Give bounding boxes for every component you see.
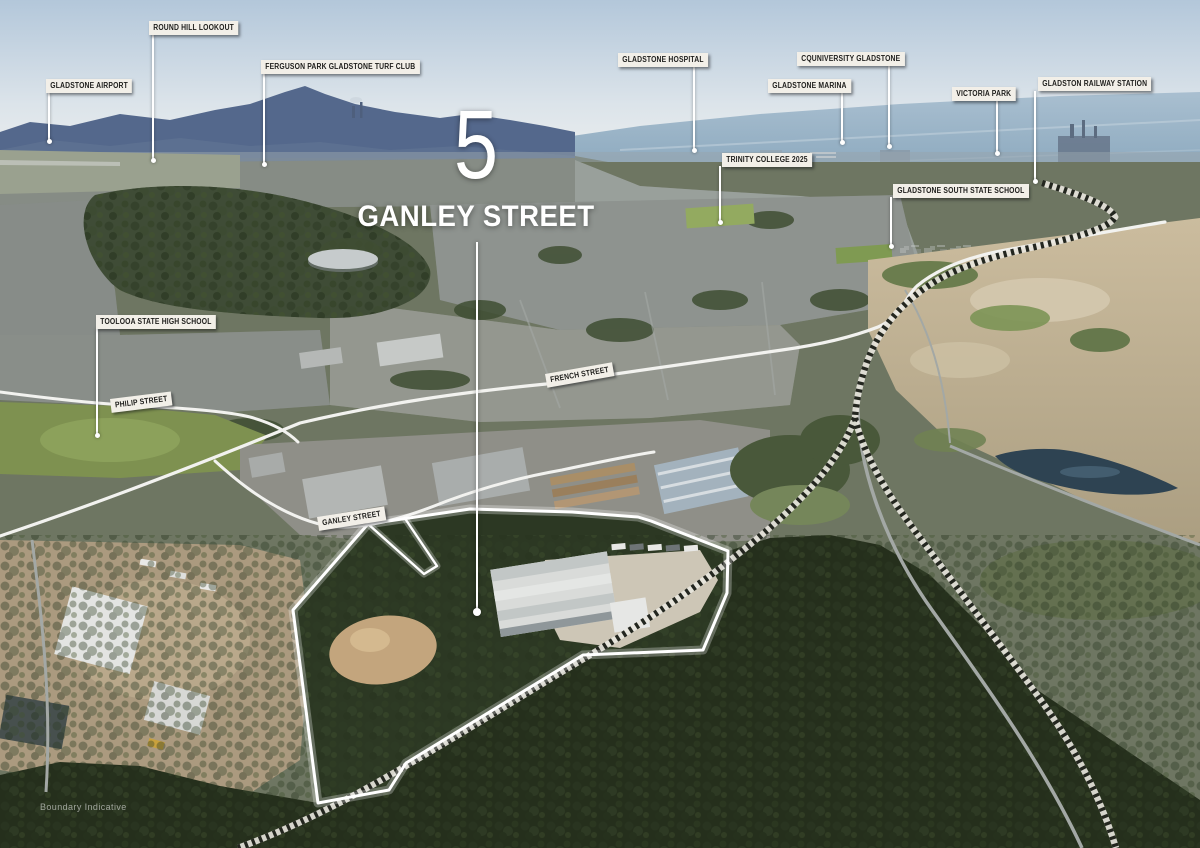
boundary-disclaimer: Boundary Indicative	[40, 802, 127, 812]
leader-line-gladstone-hospital	[693, 67, 695, 150]
poi-label-gladstone-hospital: GLADSTONE HOSPITAL	[618, 53, 708, 67]
leader-line-gladstone-south-state-school	[890, 197, 892, 246]
leader-dot-cquniversity-gladstone	[887, 144, 892, 149]
poi-label-ferguson-park-gladstone-turf-club: FERGUSON PARK GLADSTONE TURF CLUB	[261, 60, 420, 74]
poi-label-trinity-college-2025: TRINITY COLLEGE 2025	[722, 153, 812, 167]
leader-line-cquniversity-gladstone	[888, 66, 890, 146]
street-label-philip-street: PHILIP STREET	[110, 392, 172, 413]
leader-dot-gladstone-airport	[47, 139, 52, 144]
street-label-ganley-street: GANLEY STREET	[317, 506, 386, 530]
hero-street-name: GANLEY STREET	[338, 200, 614, 234]
leader-line-victoria-park	[996, 100, 998, 153]
leader-line-gladston-railway-station	[1034, 91, 1036, 181]
aerial-marketing-image: GLADSTONE AIRPORT ROUND HILL LOOKOUT FER…	[0, 0, 1200, 848]
leader-dot-gladston-railway-station	[1033, 179, 1038, 184]
leader-dot-round-hill-lookout	[151, 158, 156, 163]
poi-label-toolooa-state-high-school: TOOLOOA STATE HIGH SCHOOL	[96, 315, 216, 329]
leader-line-round-hill-lookout	[152, 35, 154, 160]
leader-dot-gladstone-hospital	[692, 148, 697, 153]
leader-dot-victoria-park	[995, 151, 1000, 156]
leader-line-gladstone-marina	[841, 93, 843, 142]
hero-number: 5	[353, 96, 599, 193]
poi-label-gladstone-airport: GLADSTONE AIRPORT	[46, 79, 132, 93]
leader-line-toolooa-state-high-school	[96, 329, 98, 435]
poi-label-gladstone-marina: GLADSTONE MARINA	[768, 79, 851, 93]
poi-label-gladstone-south-state-school: GLADSTONE SOUTH STATE SCHOOL	[893, 184, 1029, 198]
hero-leader-dot	[473, 608, 481, 616]
hero-title: 5 GANLEY STREET	[326, 96, 626, 234]
poi-label-cquniversity-gladstone: CQUNIVERSITY GLADSTONE	[797, 52, 905, 66]
poi-label-gladston-railway-station: GLADSTON RAILWAY STATION	[1038, 77, 1151, 91]
leader-line-ferguson-park-gladstone-turf-club	[263, 74, 265, 164]
poi-label-round-hill-lookout: ROUND HILL LOOKOUT	[149, 21, 238, 35]
poi-label-victoria-park: VICTORIA PARK	[952, 87, 1015, 101]
leader-dot-gladstone-marina	[840, 140, 845, 145]
leader-line-gladstone-airport	[48, 93, 50, 141]
hero-leader-line	[476, 242, 478, 610]
leader-line-trinity-college-2025	[719, 166, 721, 222]
leader-dot-gladstone-south-state-school	[889, 244, 894, 249]
leader-dot-ferguson-park-gladstone-turf-club	[262, 162, 267, 167]
street-label-french-street: FRENCH STREET	[545, 362, 614, 388]
leader-dot-trinity-college-2025	[718, 220, 723, 225]
leader-dot-toolooa-state-high-school	[95, 433, 100, 438]
